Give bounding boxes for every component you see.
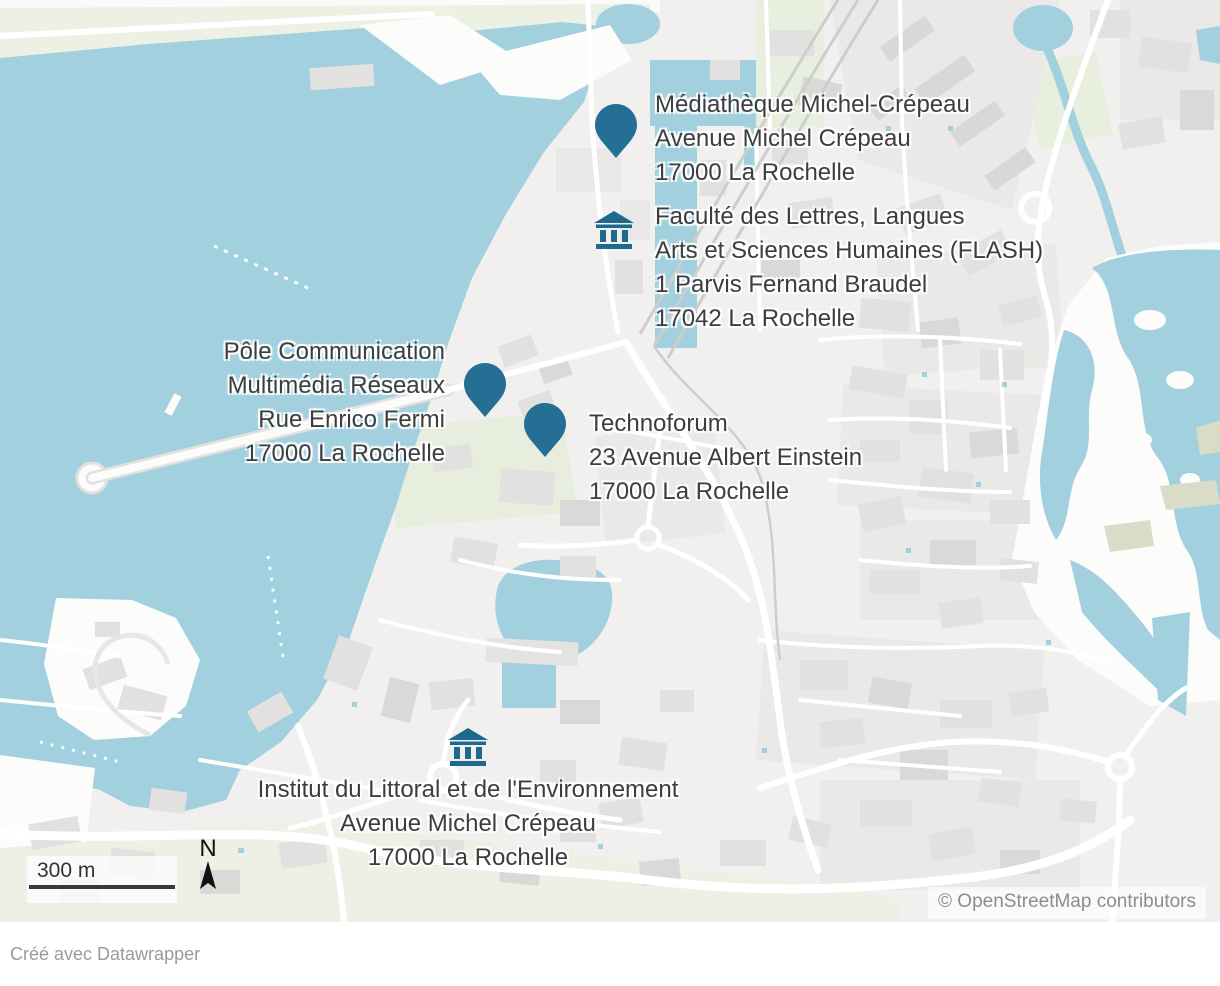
attribution-text[interactable]: © OpenStreetMap contributors bbox=[938, 891, 1196, 912]
marker-building-flash bbox=[594, 211, 634, 249]
label-institut-littoral: Institut du Littoral et de l'Environneme… bbox=[218, 773, 718, 875]
label-line: Arts et Sciences Humaines (FLASH) bbox=[655, 234, 1043, 268]
map-pin-icon bbox=[524, 403, 566, 457]
north-arrow: N bbox=[196, 837, 220, 896]
label-line: 17000 La Rochelle bbox=[655, 156, 970, 190]
scale-bar-line bbox=[29, 885, 175, 889]
museum-building-icon bbox=[594, 211, 634, 249]
page: { "map": { "attribution": "© OpenStreetM… bbox=[0, 0, 1220, 986]
label-line: 17000 La Rochelle bbox=[145, 437, 445, 471]
marker-building-institut-littoral bbox=[448, 728, 488, 766]
label-line: 1 Parvis Fernand Braudel bbox=[655, 268, 1043, 302]
north-arrow-icon bbox=[200, 861, 216, 891]
label-line: Avenue Michel Crépeau bbox=[218, 807, 718, 841]
label-line: Rue Enrico Fermi bbox=[145, 403, 445, 437]
label-line: 17000 La Rochelle bbox=[589, 475, 862, 509]
marker-pin-pole-communication bbox=[464, 363, 506, 417]
locator-map: Médiathèque Michel-Crépeau Avenue Michel… bbox=[0, 0, 1220, 922]
label-line: 17042 La Rochelle bbox=[655, 302, 1043, 336]
label-line: Pôle Communication bbox=[145, 335, 445, 369]
scale-bar: 300 m bbox=[27, 856, 177, 903]
label-line: 23 Avenue Albert Einstein bbox=[589, 441, 862, 475]
osm-attribution[interactable]: © OpenStreetMap contributors bbox=[928, 887, 1206, 919]
north-label: N bbox=[196, 837, 220, 861]
label-line: Multimédia Réseaux bbox=[145, 369, 445, 403]
label-pole-communication: Pôle Communication Multimédia Réseaux Ru… bbox=[145, 335, 445, 471]
label-technoforum: Technoforum 23 Avenue Albert Einstein 17… bbox=[589, 407, 862, 509]
marker-pin-technoforum bbox=[524, 403, 566, 457]
map-pin-icon bbox=[595, 104, 637, 158]
label-line: 17000 La Rochelle bbox=[218, 841, 718, 875]
museum-building-icon bbox=[448, 728, 488, 766]
label-mediatheque: Médiathèque Michel-Crépeau Avenue Michel… bbox=[655, 88, 970, 190]
label-faculte-flash: Faculté des Lettres, Langues Arts et Sci… bbox=[655, 200, 1043, 336]
datawrapper-credit[interactable]: Créé avec Datawrapper bbox=[10, 944, 200, 965]
label-line: Institut du Littoral et de l'Environneme… bbox=[218, 773, 718, 807]
map-pin-icon bbox=[464, 363, 506, 417]
label-line: Médiathèque Michel-Crépeau bbox=[655, 88, 970, 122]
scale-label: 300 m bbox=[27, 856, 177, 883]
marker-pin-mediatheque bbox=[595, 104, 637, 158]
label-line: Faculté des Lettres, Langues bbox=[655, 200, 1043, 234]
label-line: Technoforum bbox=[589, 407, 862, 441]
label-line: Avenue Michel Crépeau bbox=[655, 122, 970, 156]
